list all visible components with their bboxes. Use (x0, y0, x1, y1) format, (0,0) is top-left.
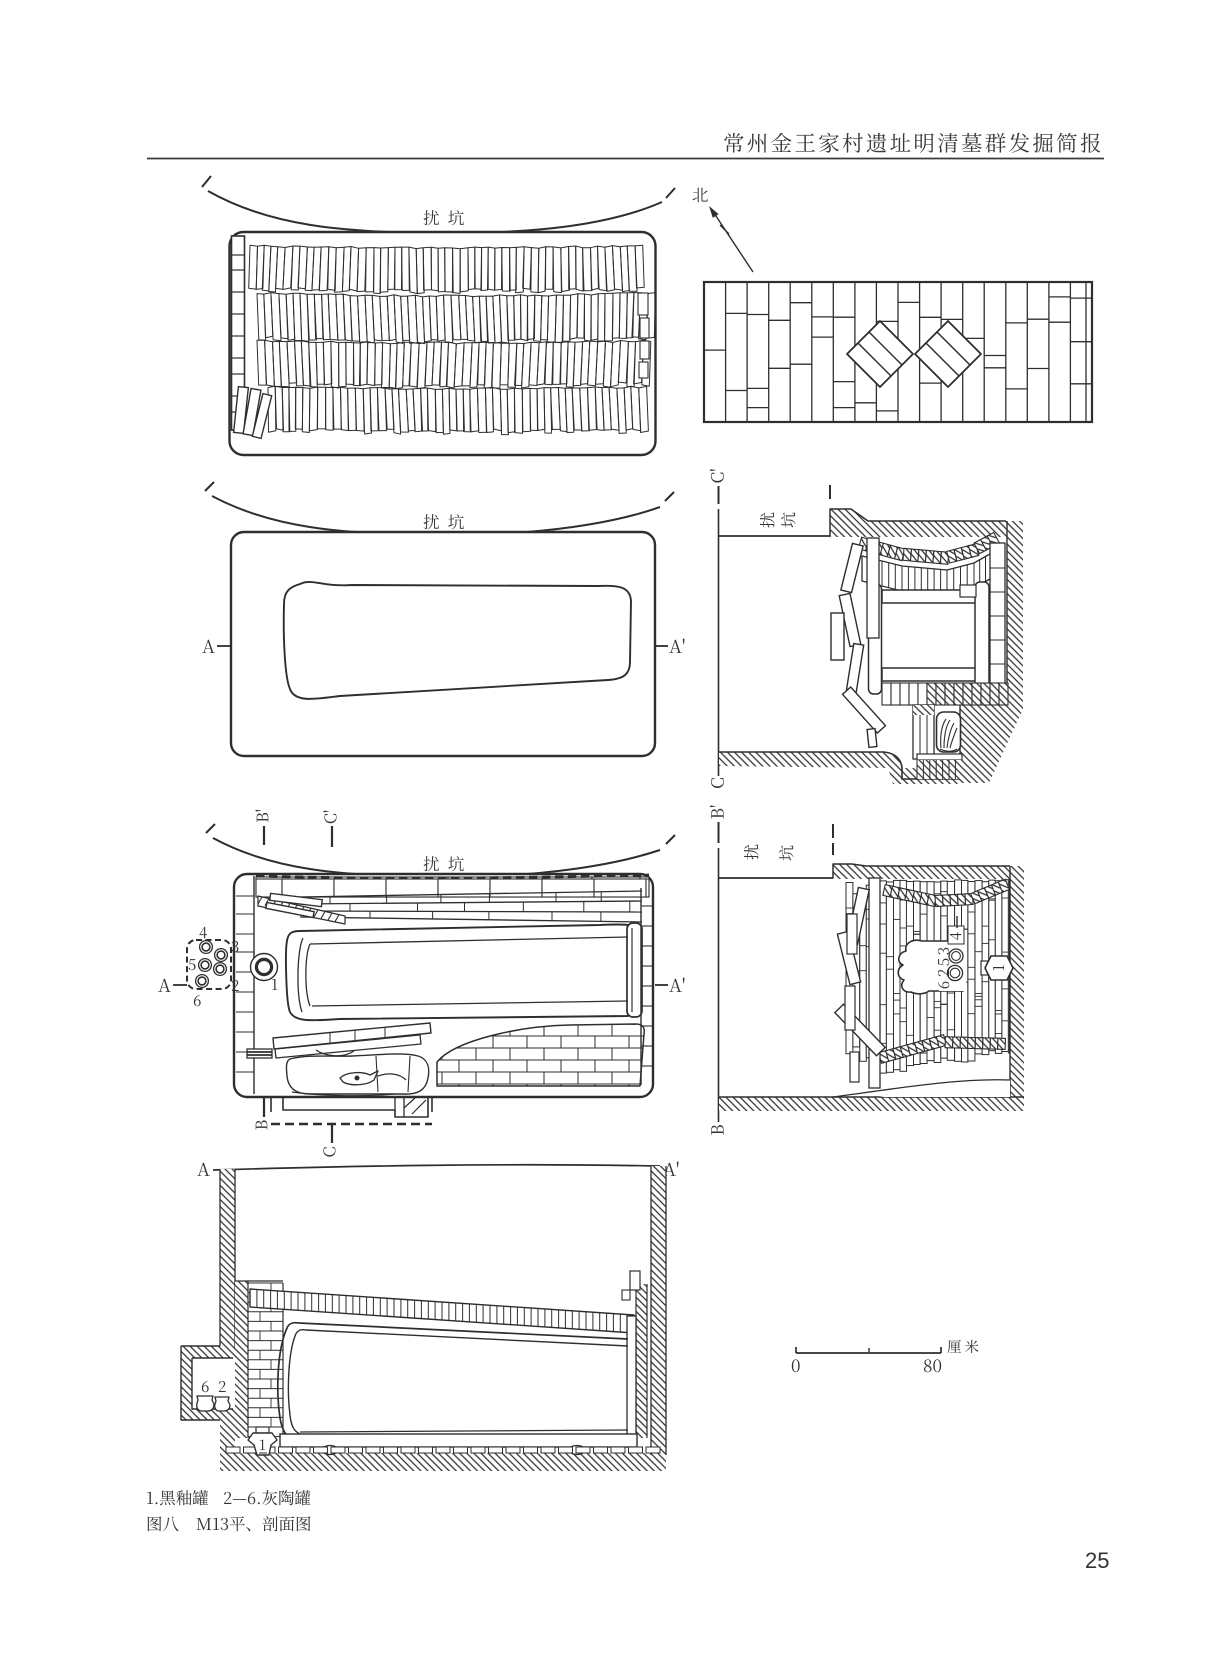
svg-text:25: 25 (1085, 1548, 1109, 1573)
